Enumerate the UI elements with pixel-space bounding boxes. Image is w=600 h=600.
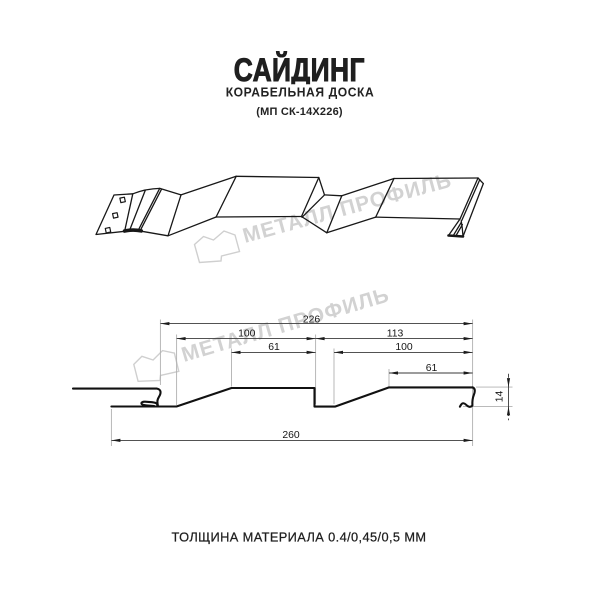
svg-text:260: 260 bbox=[282, 430, 300, 441]
svg-text:100: 100 bbox=[238, 328, 256, 339]
svg-text:113: 113 bbox=[387, 328, 404, 339]
svg-text:САЙДИНГ: САЙДИНГ bbox=[234, 51, 365, 88]
svg-text:КОРАБЕЛЬНАЯ ДОСКА: КОРАБЕЛЬНАЯ ДОСКА bbox=[226, 85, 375, 99]
svg-text:226: 226 bbox=[303, 314, 321, 325]
svg-text:100: 100 bbox=[395, 342, 413, 353]
svg-text:(МП СК-14Х226): (МП СК-14Х226) bbox=[256, 106, 343, 118]
svg-text:14: 14 bbox=[494, 391, 505, 403]
svg-text:ТОЛЩИНА МАТЕРИАЛА 0.4/0,45/0,5: ТОЛЩИНА МАТЕРИАЛА 0.4/0,45/0,5 ММ bbox=[172, 529, 427, 544]
svg-text:61: 61 bbox=[426, 363, 438, 374]
svg-text:61: 61 bbox=[268, 342, 280, 353]
